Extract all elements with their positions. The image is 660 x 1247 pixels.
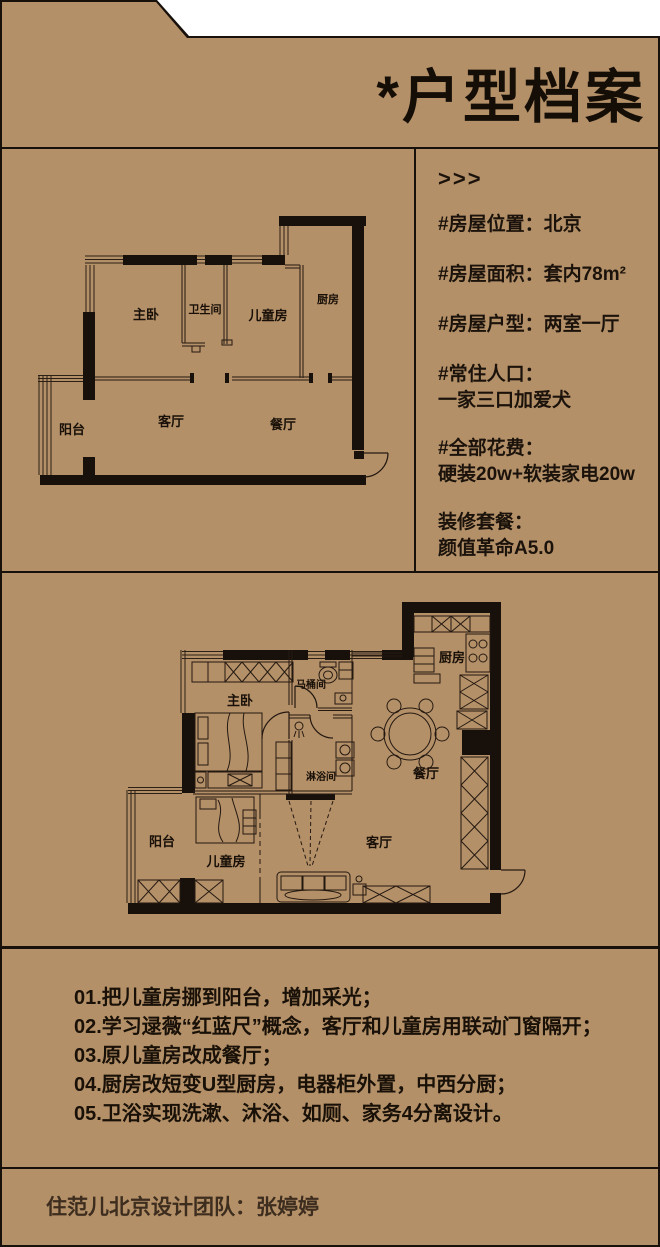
plan1-label-kids: 儿童房 xyxy=(247,308,287,323)
note-item-2: 02.学习逯薇“红蓝尺”概念，客厅和儿童房用联动门窗隔开； xyxy=(74,1013,630,1042)
floorplan-before: 主卧 卫生间 儿童房 厨房 阳台 客厅 餐厅 xyxy=(2,148,410,572)
plan1-interior-walls xyxy=(95,265,352,380)
plan1-label-living: 客厅 xyxy=(158,414,184,429)
info-item-package-label: 装修套餐： xyxy=(438,510,652,536)
plan1-label-master: 主卧 xyxy=(133,307,159,322)
page-title: *户型档案 xyxy=(376,50,646,134)
info-item-residents-label: #常住人口： xyxy=(438,362,652,388)
info-item-cost: #全部花费： 硬装20w+软装家电20w xyxy=(438,436,652,488)
floorplan-after: 主卧 马桶间 厨房 餐厅 客厅 阳台 儿童房 淋浴间 xyxy=(2,574,658,946)
info-item-residents-value: 一家三口加爱犬 xyxy=(438,388,652,414)
renovation-notes: 01.把儿童房挪到阳台，增加采光； 02.学习逯薇“红蓝尺”概念，客厅和儿童房用… xyxy=(74,984,630,1129)
divider-vertical xyxy=(414,148,416,572)
plan2-label-master: 主卧 xyxy=(227,693,253,708)
plan1-label-balcony: 阳台 xyxy=(59,422,85,437)
info-item-cost-label: #全部花费： xyxy=(438,436,652,462)
note-item-3: 03.原儿童房改成餐厅； xyxy=(74,1042,630,1071)
note-item-4: 04.厨房改短变U型厨房，电器柜外置，中西分厨； xyxy=(74,1071,630,1100)
arrow-icon: >>> xyxy=(438,166,652,192)
plan1-label-kitchen: 厨房 xyxy=(317,292,339,306)
design-team-credit: 住范儿北京设计团队：张婷婷 xyxy=(46,1191,319,1221)
plan2-label-living: 客厅 xyxy=(366,835,392,850)
plan2-label-toilet: 马桶间 xyxy=(296,678,326,691)
shower-head-icon xyxy=(295,722,303,730)
info-item-package: 装修套餐： 颜值革命A5.0 xyxy=(438,510,652,562)
plan1-entry-door xyxy=(364,453,388,477)
note-item-1: 01.把儿童房挪到阳台，增加采光； xyxy=(74,984,630,1013)
plan2-doors xyxy=(262,686,525,894)
info-item-package-value: 颜值革命A5.0 xyxy=(438,536,652,562)
plan2-bedroom-furniture xyxy=(195,713,291,843)
note-item-5: 05.卫浴实现洗漱、沐浴、如厕、家务4分离设计。 xyxy=(74,1100,630,1129)
plan2-label-kids: 儿童房 xyxy=(205,854,245,869)
plan2-label-kitchen: 厨房 xyxy=(439,650,465,665)
plan2-kitchen-fixtures xyxy=(414,634,490,729)
dining-table xyxy=(371,699,449,769)
divider-header xyxy=(2,147,658,149)
plan1-label-dining: 餐厅 xyxy=(269,417,296,432)
sofa-area xyxy=(277,801,366,902)
plan2-walls xyxy=(128,602,501,914)
plan1-label-bath: 卫生间 xyxy=(189,302,222,316)
info-item-layout: #房屋户型：两室一厅 xyxy=(438,312,652,338)
divider-footer xyxy=(2,1167,658,1169)
projector-beam xyxy=(289,801,333,866)
info-item-location: #房屋位置：北京 xyxy=(438,212,652,238)
plan2-label-balcony: 阳台 xyxy=(149,834,175,849)
plan2-label-shower: 淋浴间 xyxy=(306,770,336,783)
kids-bed xyxy=(196,797,254,843)
divider-plan2 xyxy=(2,946,658,949)
info-item-area: #房屋面积：套内78m² xyxy=(438,262,652,288)
info-panel: >>> #房屋位置：北京 #房屋面积：套内78m² #房屋户型：两室一厅 #常住… xyxy=(438,166,652,584)
plan2-label-dining: 餐厅 xyxy=(412,766,439,781)
info-item-cost-value: 硬装20w+软装家电20w xyxy=(438,462,652,488)
info-item-residents: #常住人口： 一家三口加爱犬 xyxy=(438,362,652,414)
